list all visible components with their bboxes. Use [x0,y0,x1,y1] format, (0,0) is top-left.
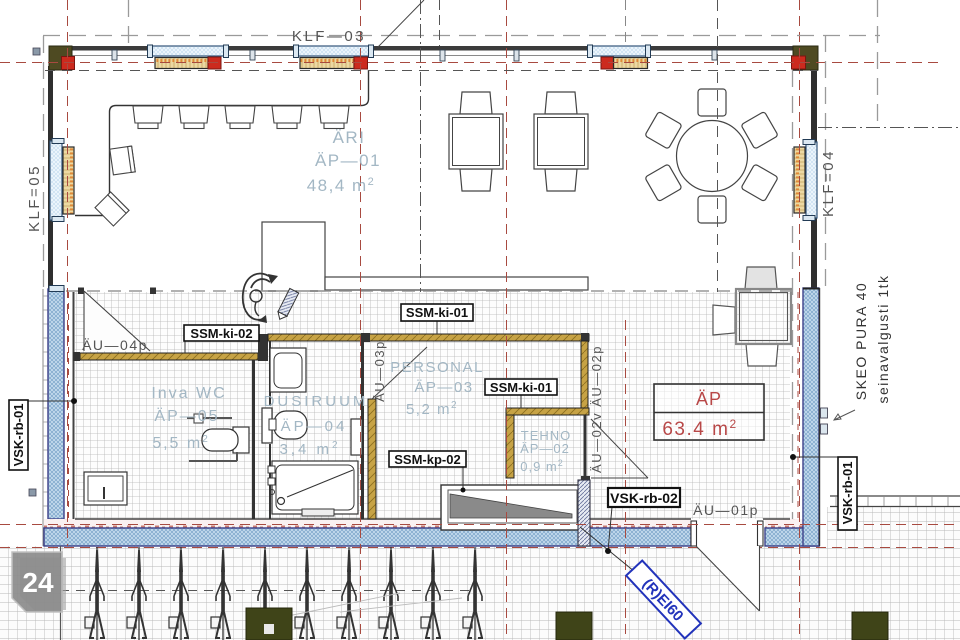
svg-text:ÄU—04p: ÄU—04p [82,337,148,353]
svg-text:DUSIRUUM: DUSIRUUM [264,393,369,410]
svg-text:48,4 m2: 48,4 m2 [307,176,376,195]
svg-text:ÄP—02: ÄP—02 [520,441,570,456]
svg-text:VSK-rb-01: VSK-rb-01 [840,462,855,525]
svg-text:5,2 m2: 5,2 m2 [406,400,458,418]
svg-text:0,9 m2: 0,9 m2 [520,458,564,474]
svg-text:ÄU—03p: ÄU—03p [372,340,387,402]
svg-text:SKEO PURA 40: SKEO PURA 40 [853,282,869,400]
svg-text:5,5 m2: 5,5 m2 [152,434,210,452]
svg-text:SSM-kp-02: SSM-kp-02 [394,452,460,467]
svg-text:ÄU—02v ÄU—02p: ÄU—02v ÄU—02p [589,345,604,473]
svg-text:VSK-rb-01: VSK-rb-01 [11,404,26,467]
svg-text:KLF=05: KLF=05 [26,164,43,232]
svg-text:ÄP—05: ÄP—05 [154,407,219,425]
svg-text:63.4 m2: 63.4 m2 [662,417,737,440]
svg-text:SSM-ki-01: SSM-ki-01 [406,305,468,320]
svg-text:KLF—03: KLF—03 [292,28,366,45]
svg-text:3,4 m2: 3,4 m2 [279,440,340,458]
svg-text:SSM-ki-02: SSM-ki-02 [190,326,252,341]
svg-text:ÄRI: ÄRI [333,128,366,147]
svg-text:PERSONAL: PERSONAL [390,359,484,376]
svg-text:ÄP—03: ÄP—03 [414,379,473,396]
svg-text:ÄP—04: ÄP—04 [281,418,348,435]
svg-text:seinavalgusti 1tk: seinavalgusti 1tk [875,274,891,403]
svg-text:KLF=04: KLF=04 [820,149,837,217]
svg-text:ÄP—01: ÄP—01 [315,151,381,170]
svg-text:24: 24 [22,567,54,598]
svg-text:SSM-ki-01: SSM-ki-01 [490,380,552,395]
svg-text:Inva WC: Inva WC [151,385,226,402]
svg-text:VSK-rb-02: VSK-rb-02 [610,490,678,506]
svg-text:ÄP: ÄP [696,389,722,409]
svg-text:ÄU—01p: ÄU—01p [693,502,759,518]
